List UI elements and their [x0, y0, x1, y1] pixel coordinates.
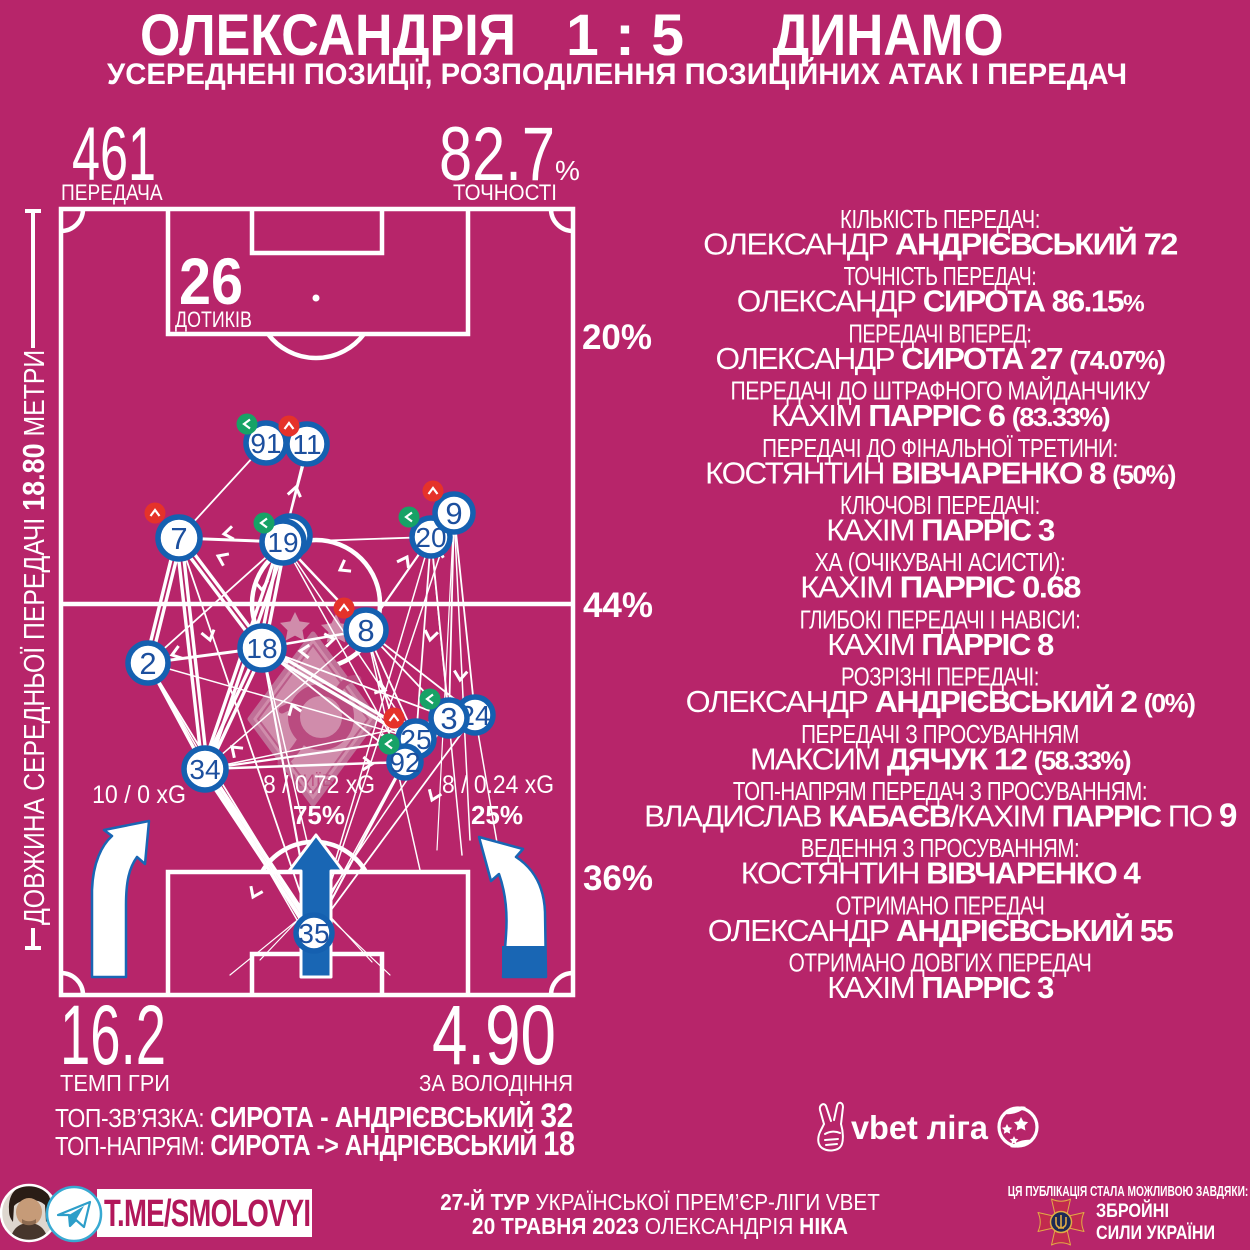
svg-text:ТЕМП ГРИ: ТЕМП ГРИ: [60, 1070, 170, 1096]
svg-text:91: 91: [250, 428, 281, 459]
svg-text:ДОТИКІВ: ДОТИКІВ: [175, 308, 252, 332]
svg-text:КАХІМ ПАРРІС 8: КАХІМ ПАРРІС 8: [827, 627, 1054, 662]
svg-text:26: 26: [179, 244, 243, 318]
svg-text:ОЛЕКСАНДР АНДРІЄВСЬКИЙ 72: ОЛЕКСАНДР АНДРІЄВСЬКИЙ 72: [703, 226, 1178, 261]
svg-text:16.2: 16.2: [60, 988, 166, 1082]
svg-text:МАКСИМ ДЯЧУК 12 (58.33%): МАКСИМ ДЯЧУК 12 (58.33%): [750, 742, 1131, 776]
svg-text:18: 18: [246, 633, 277, 664]
svg-text:4.90: 4.90: [432, 988, 556, 1082]
svg-text:УСЕРЕДНЕНІ ПОЗИЦІЇ, РОЗПОДІЛЕН: УСЕРЕДНЕНІ ПОЗИЦІЇ, РОЗПОДІЛЕННЯ ПОЗИЦІЙ…: [107, 57, 1127, 91]
svg-text:ЗА ВОЛОДІННЯ: ЗА ВОЛОДІННЯ: [419, 1070, 573, 1096]
svg-text:ДОВЖИНА СЕРЕДНЬОЇ ПЕРЕДАЧІ 18.: ДОВЖИНА СЕРЕДНЬОЇ ПЕРЕДАЧІ 18.80 МЕТРИ: [17, 350, 51, 925]
svg-text:11: 11: [292, 429, 321, 460]
svg-text:44%: 44%: [583, 586, 653, 625]
svg-text:ЦЯ ПУБЛІКАЦІЯ СТАЛА МОЖЛИВОЮ З: ЦЯ ПУБЛІКАЦІЯ СТАЛА МОЖЛИВОЮ ЗАВДЯКИ:: [1008, 1183, 1249, 1199]
svg-text:КАХІМ ПАРРІС 3: КАХІМ ПАРРІС 3: [827, 970, 1054, 1005]
svg-text:vbet ліга: vbet ліга: [851, 1109, 989, 1146]
svg-text:ОЛЕКСАНДР СИРОТА 86.15%: ОЛЕКСАНДР СИРОТА 86.15%: [737, 284, 1144, 319]
svg-text:ВЛАДИСЛАВ КАБАЄВ/КАХІМ ПАРРІС: ВЛАДИСЛАВ КАБАЄВ/КАХІМ ПАРРІС ПО 9: [644, 798, 1237, 835]
svg-text:36%: 36%: [583, 859, 653, 898]
svg-text:34: 34: [189, 754, 220, 785]
svg-text:ЗБРОЙНІ: ЗБРОЙНІ: [1096, 1199, 1169, 1222]
svg-text:8 / 0.24 xG: 8 / 0.24 xG: [442, 771, 554, 799]
svg-text:ОЛЕКСАНДР СИРОТА 27 (74.07%): ОЛЕКСАНДР СИРОТА 27 (74.07%): [716, 341, 1166, 376]
svg-text:ОЛЕКСАНДР АНДРІЄВСЬКИЙ 55: ОЛЕКСАНДР АНДРІЄВСЬКИЙ 55: [708, 912, 1173, 947]
svg-text:ТОЧНОСТІ: ТОЧНОСТІ: [453, 180, 557, 205]
svg-text:КАХІМ ПАРРІС 3: КАХІМ ПАРРІС 3: [826, 513, 1055, 548]
svg-text:7: 7: [170, 521, 187, 556]
svg-text:27-Й ТУР УКРАЇНСЬКОЇ ПРЕМ’ЄР-Л: 27-Й ТУР УКРАЇНСЬКОЇ ПРЕМ’ЄР-ЛІГИ VBET: [440, 1189, 880, 1215]
svg-text:ПЕРЕДАЧА: ПЕРЕДАЧА: [61, 181, 163, 206]
svg-text:19: 19: [267, 527, 298, 558]
svg-text:КАХІМ ПАРРІС 6 (83.33%): КАХІМ ПАРРІС 6 (83.33%): [771, 398, 1110, 433]
svg-text:8 / 0.72 xG: 8 / 0.72 xG: [263, 771, 375, 799]
svg-text:25%: 25%: [471, 800, 523, 830]
svg-text:10 / 0 xG: 10 / 0 xG: [92, 781, 186, 809]
svg-text:35: 35: [298, 918, 329, 949]
svg-text:КОСТЯНТИН ВІВЧАРЕНКО 8 (50%): КОСТЯНТИН ВІВЧАРЕНКО 8 (50%): [705, 455, 1175, 490]
svg-text:T.ME/SMOLOVYI: T.ME/SMOLOVYI: [104, 1193, 310, 1235]
svg-text:20 ТРАВНЯ 2023 ОЛЕКСАНДРІЯ НІК: 20 ТРАВНЯ 2023 ОЛЕКСАНДРІЯ НІКА: [472, 1213, 848, 1239]
svg-text:75%: 75%: [293, 800, 345, 830]
svg-text:8: 8: [357, 613, 374, 648]
svg-text:СИЛИ УКРАЇНИ: СИЛИ УКРАЇНИ: [1096, 1222, 1215, 1244]
svg-text:2: 2: [139, 646, 156, 681]
svg-text:КОСТЯНТИН ВІВЧАРЕНКО 4: КОСТЯНТИН ВІВЧАРЕНКО 4: [741, 856, 1142, 891]
svg-text:20%: 20%: [582, 318, 652, 357]
svg-text:3: 3: [440, 701, 457, 736]
svg-text:9: 9: [445, 496, 462, 531]
svg-text:ОЛЕКСАНДР АНДРІЄВСЬКИЙ 2 (0%): ОЛЕКСАНДР АНДРІЄВСЬКИЙ 2 (0%): [686, 684, 1196, 719]
svg-text:КАХІМ ПАРРІС 0.68: КАХІМ ПАРРІС 0.68: [800, 570, 1080, 605]
